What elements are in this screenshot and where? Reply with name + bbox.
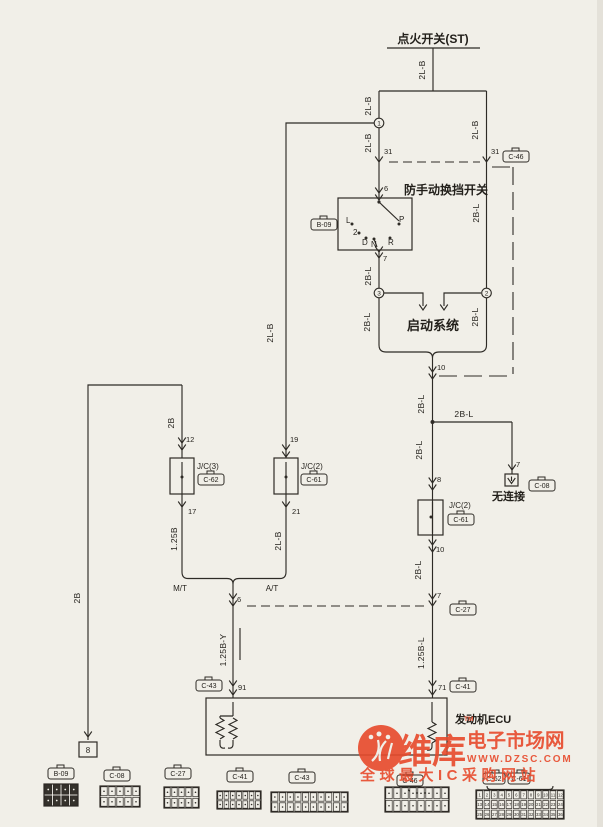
- svg-text:23: 23: [551, 802, 556, 807]
- svg-text:12: 12: [558, 793, 563, 798]
- connector-ref-c41: C-41: [450, 678, 476, 692]
- svg-text:36: 36: [558, 812, 563, 817]
- svg-text:24: 24: [558, 802, 563, 807]
- continuation-box: 8: [79, 742, 97, 757]
- svg-text:C-27: C-27: [455, 607, 470, 614]
- svg-text:7: 7: [516, 460, 520, 469]
- switch-pos-R: R: [388, 238, 394, 247]
- wire-labels: 2L-B 2L-B 2L-B 2L-B 2B-L 2B-L 2B-L 2B-L …: [72, 60, 481, 669]
- svg-text:B-09: B-09: [54, 771, 69, 778]
- pinout-label-c27: C-27: [165, 765, 191, 779]
- connector-refs: C-46 B-09 C-08 C-61 C-27 C-41 C-43 C-62 …: [196, 148, 555, 692]
- switch-pos-P: P: [399, 215, 404, 224]
- junction-1: 1: [374, 118, 384, 128]
- svg-text:3: 3: [377, 291, 381, 298]
- svg-text:19: 19: [290, 435, 298, 444]
- wiring-diagram-canvas: 点火开关(ST) 1 3 2 L 2 D N R P 防手动换挡开关 启动系统 …: [0, 0, 603, 827]
- svg-text:2: 2: [485, 291, 489, 298]
- svg-text:C-43: C-43: [294, 775, 309, 782]
- svg-text:10: 10: [543, 793, 548, 798]
- svg-text:2B-L: 2B-L: [414, 440, 424, 459]
- svg-text:17: 17: [188, 507, 196, 516]
- svg-text:1: 1: [377, 121, 381, 128]
- svg-text:2B-L: 2B-L: [470, 307, 480, 326]
- svg-text:C-61: C-61: [453, 517, 468, 524]
- switch-pos-2: 2: [353, 228, 358, 237]
- junction-3: 3: [374, 288, 384, 298]
- svg-text:35: 35: [551, 812, 556, 817]
- svg-text:8: 8: [86, 746, 91, 755]
- engine-ecu-label: 发动机ECU: [454, 712, 511, 726]
- pinout-c62-c61-brace: [487, 786, 553, 790]
- svg-text:2L-B: 2L-B: [363, 133, 373, 152]
- scan-edge-shadow: [597, 0, 603, 827]
- pinout-c08-cells: [101, 787, 139, 806]
- mt-label: M/T: [173, 584, 187, 593]
- connector-ref-c43: C-43: [196, 677, 222, 691]
- pinout-c27-cells: [165, 788, 198, 807]
- watermark-suffix: 电子市场网: [467, 729, 565, 752]
- svg-text:2L-B: 2L-B: [363, 96, 373, 115]
- svg-text:21: 21: [536, 802, 541, 807]
- svg-text:2L-B: 2L-B: [470, 120, 480, 139]
- svg-text:1.25B-Y: 1.25B-Y: [218, 634, 228, 667]
- pinout-label-c08: C-08: [104, 767, 130, 781]
- wire-junction-dot: [431, 420, 435, 424]
- svg-text:71: 71: [438, 683, 446, 692]
- svg-text:16: 16: [499, 802, 504, 807]
- pinout-label-c43: C-43: [289, 769, 315, 783]
- svg-text:27: 27: [492, 812, 497, 817]
- svg-text:29: 29: [507, 812, 512, 817]
- svg-text:7: 7: [437, 591, 441, 600]
- svg-text:6: 6: [384, 184, 388, 193]
- svg-text:C-61: C-61: [306, 477, 321, 484]
- svg-text:2L-B: 2L-B: [265, 323, 275, 342]
- svg-text:C-41: C-41: [455, 684, 470, 691]
- svg-text:C-08: C-08: [109, 773, 124, 780]
- pin-arrows: [84, 157, 516, 738]
- svg-text:25: 25: [477, 812, 482, 817]
- connector-ref-c61-right: C-61: [448, 511, 474, 525]
- svg-text:2B-L: 2B-L: [416, 394, 426, 413]
- jc2-right-label: J/C(2): [449, 501, 471, 510]
- watermark-url: WWW.DZSC.COM: [467, 754, 572, 765]
- pinout-b09-cells: [45, 785, 77, 805]
- svg-text:21: 21: [292, 507, 300, 516]
- joint-connector-2-right: [418, 500, 443, 535]
- pinout-c41-cells: [218, 792, 260, 808]
- watermark: 维库 电子市场网 TM WWW.DZSC.COM 全球最大IC采购网站: [358, 716, 572, 784]
- svg-text:6: 6: [237, 595, 241, 604]
- svg-text:C-41: C-41: [232, 774, 247, 781]
- svg-text:2B-L: 2B-L: [454, 409, 473, 419]
- at-label: A/T: [266, 584, 279, 593]
- svg-text:33: 33: [536, 812, 541, 817]
- pinout-c43-cells: [272, 793, 347, 811]
- svg-text:2B-L: 2B-L: [362, 312, 372, 331]
- svg-text:28: 28: [499, 812, 504, 817]
- svg-text:2B-L: 2B-L: [413, 560, 423, 579]
- svg-text:2B-L: 2B-L: [363, 266, 373, 285]
- watermark-tm: TM: [464, 716, 473, 723]
- watermark-brand: 维库: [398, 733, 466, 771]
- svg-text:14: 14: [485, 802, 490, 807]
- svg-text:20: 20: [529, 802, 534, 807]
- starting-system-label: 启动系统: [407, 318, 459, 333]
- svg-text:C-62: C-62: [203, 477, 218, 484]
- svg-text:15: 15: [492, 802, 497, 807]
- svg-text:1.25B-L: 1.25B-L: [416, 637, 426, 669]
- svg-text:31: 31: [521, 812, 526, 817]
- svg-text:19: 19: [521, 802, 526, 807]
- connector-ref-c27: C-27: [450, 601, 476, 615]
- connector-ref-c46: C-46: [503, 148, 529, 162]
- svg-text:13: 13: [477, 802, 482, 807]
- svg-text:11: 11: [551, 793, 556, 798]
- jc2-left-label: J/C(2): [301, 462, 323, 471]
- svg-text:17: 17: [507, 802, 512, 807]
- switch-pos-L: L: [346, 216, 351, 225]
- switch-pos-N: N: [371, 240, 377, 249]
- inhibitor-switch: L 2 D N R P: [338, 198, 412, 250]
- no-connection-terminal: [505, 474, 518, 486]
- no-connection-label: 无连接: [491, 489, 525, 503]
- svg-text:22: 22: [543, 802, 548, 807]
- svg-text:10: 10: [437, 363, 445, 372]
- pinout-label-c41: C-41: [227, 768, 253, 782]
- svg-text:32: 32: [529, 812, 534, 817]
- svg-text:B-09: B-09: [317, 222, 332, 229]
- svg-text:12: 12: [186, 435, 194, 444]
- svg-text:2B-L: 2B-L: [471, 203, 481, 222]
- svg-text:2B: 2B: [72, 592, 82, 603]
- svg-text:91: 91: [238, 683, 246, 692]
- connector-ref-c61-left: C-61: [301, 471, 327, 485]
- svg-text:18: 18: [514, 802, 519, 807]
- svg-text:30: 30: [514, 812, 519, 817]
- connector-ref-b09: B-09: [311, 216, 337, 230]
- svg-text:7: 7: [383, 254, 387, 263]
- svg-text:34: 34: [543, 812, 548, 817]
- connector-ref-c62: C-62: [198, 471, 224, 485]
- svg-text:C-08: C-08: [534, 483, 549, 490]
- svg-text:31: 31: [384, 147, 392, 156]
- junction-2: 2: [482, 288, 492, 298]
- pinout-c62-c61-cells: 1234567891011121314151617181920212223242…: [477, 791, 564, 818]
- svg-text:C-46: C-46: [508, 154, 523, 161]
- svg-text:8: 8: [437, 475, 441, 484]
- svg-text:C-27: C-27: [170, 771, 185, 778]
- connector-ref-c08: C-08: [529, 477, 555, 491]
- wiring-diagram-page: 点火开关(ST) 1 3 2 L 2 D N R P 防手动换挡开关 启动系统 …: [0, 0, 603, 827]
- wires: [88, 48, 513, 740]
- pinout-label-b09: B-09: [48, 765, 74, 779]
- inhibitor-switch-label: 防手动换挡开关: [404, 182, 488, 197]
- svg-text:2B: 2B: [166, 417, 176, 428]
- svg-text:C-43: C-43: [201, 683, 216, 690]
- jc3-label: J/C(3): [197, 462, 219, 471]
- svg-text:2L-B: 2L-B: [417, 60, 427, 79]
- switch-pos-D: D: [362, 238, 368, 247]
- svg-text:2L-B: 2L-B: [273, 531, 283, 550]
- svg-text:31: 31: [491, 147, 499, 156]
- svg-text:26: 26: [485, 812, 490, 817]
- watermark-tagline: 全球最大IC采购网站: [359, 766, 540, 784]
- svg-text:1.25B: 1.25B: [169, 527, 179, 551]
- ignition-switch-title: 点火开关(ST): [397, 31, 468, 46]
- pinout-c46-cells: [386, 788, 448, 811]
- svg-text:10: 10: [436, 545, 444, 554]
